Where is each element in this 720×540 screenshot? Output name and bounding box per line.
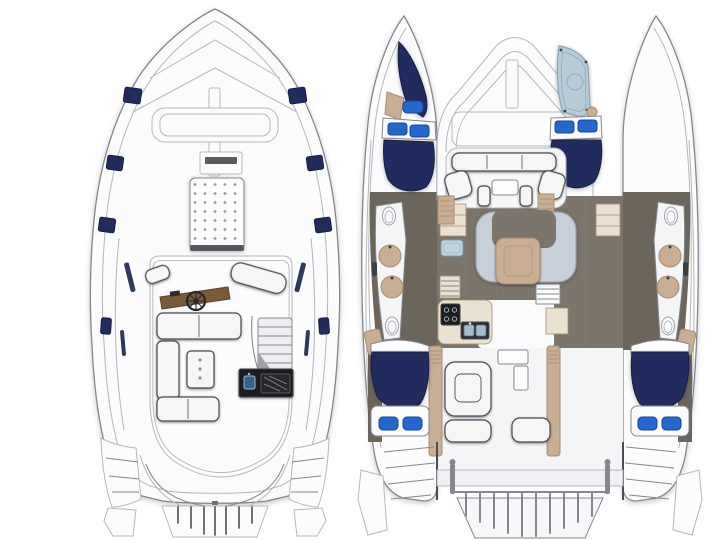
wet-bar bbox=[239, 369, 293, 397]
cabin-hatch bbox=[388, 123, 407, 135]
toilet-icon bbox=[665, 207, 678, 225]
deck-hatch bbox=[98, 217, 116, 233]
cockpit-pillar bbox=[429, 346, 442, 456]
washbasin-icon bbox=[381, 276, 403, 298]
cabin-hatch bbox=[410, 125, 429, 137]
galley-sink-icon bbox=[461, 322, 489, 339]
berth-pillow bbox=[403, 101, 423, 113]
foredeck-strip bbox=[506, 60, 518, 108]
steps-port bbox=[440, 276, 460, 298]
deck-hatch bbox=[288, 87, 307, 104]
nav-cabinet bbox=[546, 308, 568, 334]
grill-icon bbox=[261, 374, 290, 393]
stairway bbox=[252, 316, 292, 372]
steering-wheel-icon bbox=[187, 292, 205, 310]
aft-cabin-port bbox=[364, 329, 429, 436]
flybridge bbox=[144, 256, 293, 477]
cabin-hatch bbox=[555, 121, 574, 133]
cockpit-table bbox=[492, 180, 518, 195]
deck-hatch bbox=[106, 155, 124, 171]
main-deck-view bbox=[358, 16, 702, 538]
stern-steps-starboard bbox=[289, 438, 329, 536]
washbasin-icon bbox=[657, 276, 679, 298]
aft-berth-starboard bbox=[631, 352, 689, 409]
upper-deck-view bbox=[90, 9, 339, 537]
toilet-icon bbox=[386, 317, 399, 335]
foredeck-sun-pad bbox=[190, 178, 244, 251]
deck-hatch bbox=[318, 318, 329, 335]
cockpit-pillar bbox=[547, 346, 560, 456]
swim-platform bbox=[457, 498, 603, 538]
stove-icon bbox=[441, 304, 460, 325]
transom-platform bbox=[162, 501, 268, 537]
deck-hatch bbox=[306, 155, 324, 171]
washbasin-icon bbox=[379, 245, 401, 267]
aft-berth-port bbox=[371, 352, 429, 409]
washbasin-icon bbox=[659, 245, 681, 267]
yacht-floor-plan bbox=[0, 0, 720, 540]
windshield-coaming bbox=[152, 108, 278, 142]
steps-starboard bbox=[536, 284, 560, 304]
cocktail-table bbox=[187, 351, 214, 388]
saloon-table bbox=[496, 238, 540, 284]
berth-pillow bbox=[662, 417, 681, 430]
deck-hatch bbox=[123, 87, 142, 104]
cabin-hatch bbox=[578, 120, 597, 132]
cabinet-starboard bbox=[596, 204, 620, 236]
deck-hatch bbox=[100, 318, 111, 335]
berth-pillow bbox=[638, 417, 657, 430]
stern-steps-port bbox=[101, 438, 141, 536]
deck-hatch bbox=[314, 217, 332, 233]
toilet-icon bbox=[662, 317, 675, 335]
toilet-icon bbox=[383, 207, 396, 225]
berth-pillow bbox=[379, 417, 398, 430]
berth-pillow bbox=[403, 417, 422, 430]
deck-plans-canvas bbox=[0, 0, 720, 540]
aft-cabin-starboard bbox=[631, 329, 696, 436]
washbasin-icon bbox=[587, 107, 597, 117]
forward-berth-port bbox=[383, 140, 434, 191]
